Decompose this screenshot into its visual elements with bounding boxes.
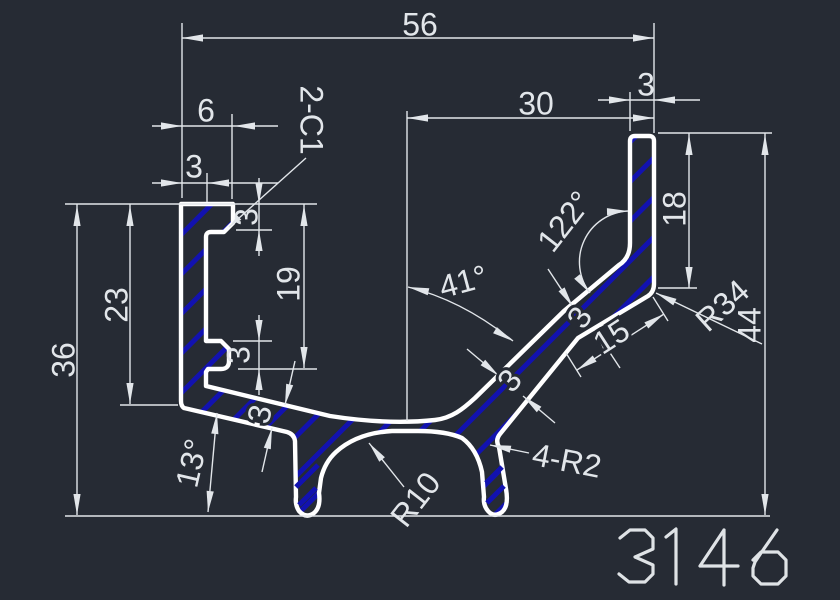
svg-text:30: 30 [518, 86, 554, 122]
svg-text:23: 23 [99, 287, 135, 323]
svg-text:3: 3 [637, 67, 655, 103]
svg-text:36: 36 [46, 342, 82, 378]
svg-text:6: 6 [197, 93, 215, 129]
svg-text:3: 3 [221, 346, 257, 364]
svg-text:3: 3 [185, 149, 203, 185]
svg-text:19: 19 [271, 266, 307, 302]
svg-text:56: 56 [402, 7, 438, 43]
svg-text:2-C1: 2-C1 [293, 85, 329, 154]
svg-text:3: 3 [229, 208, 265, 226]
svg-text:18: 18 [657, 191, 693, 227]
